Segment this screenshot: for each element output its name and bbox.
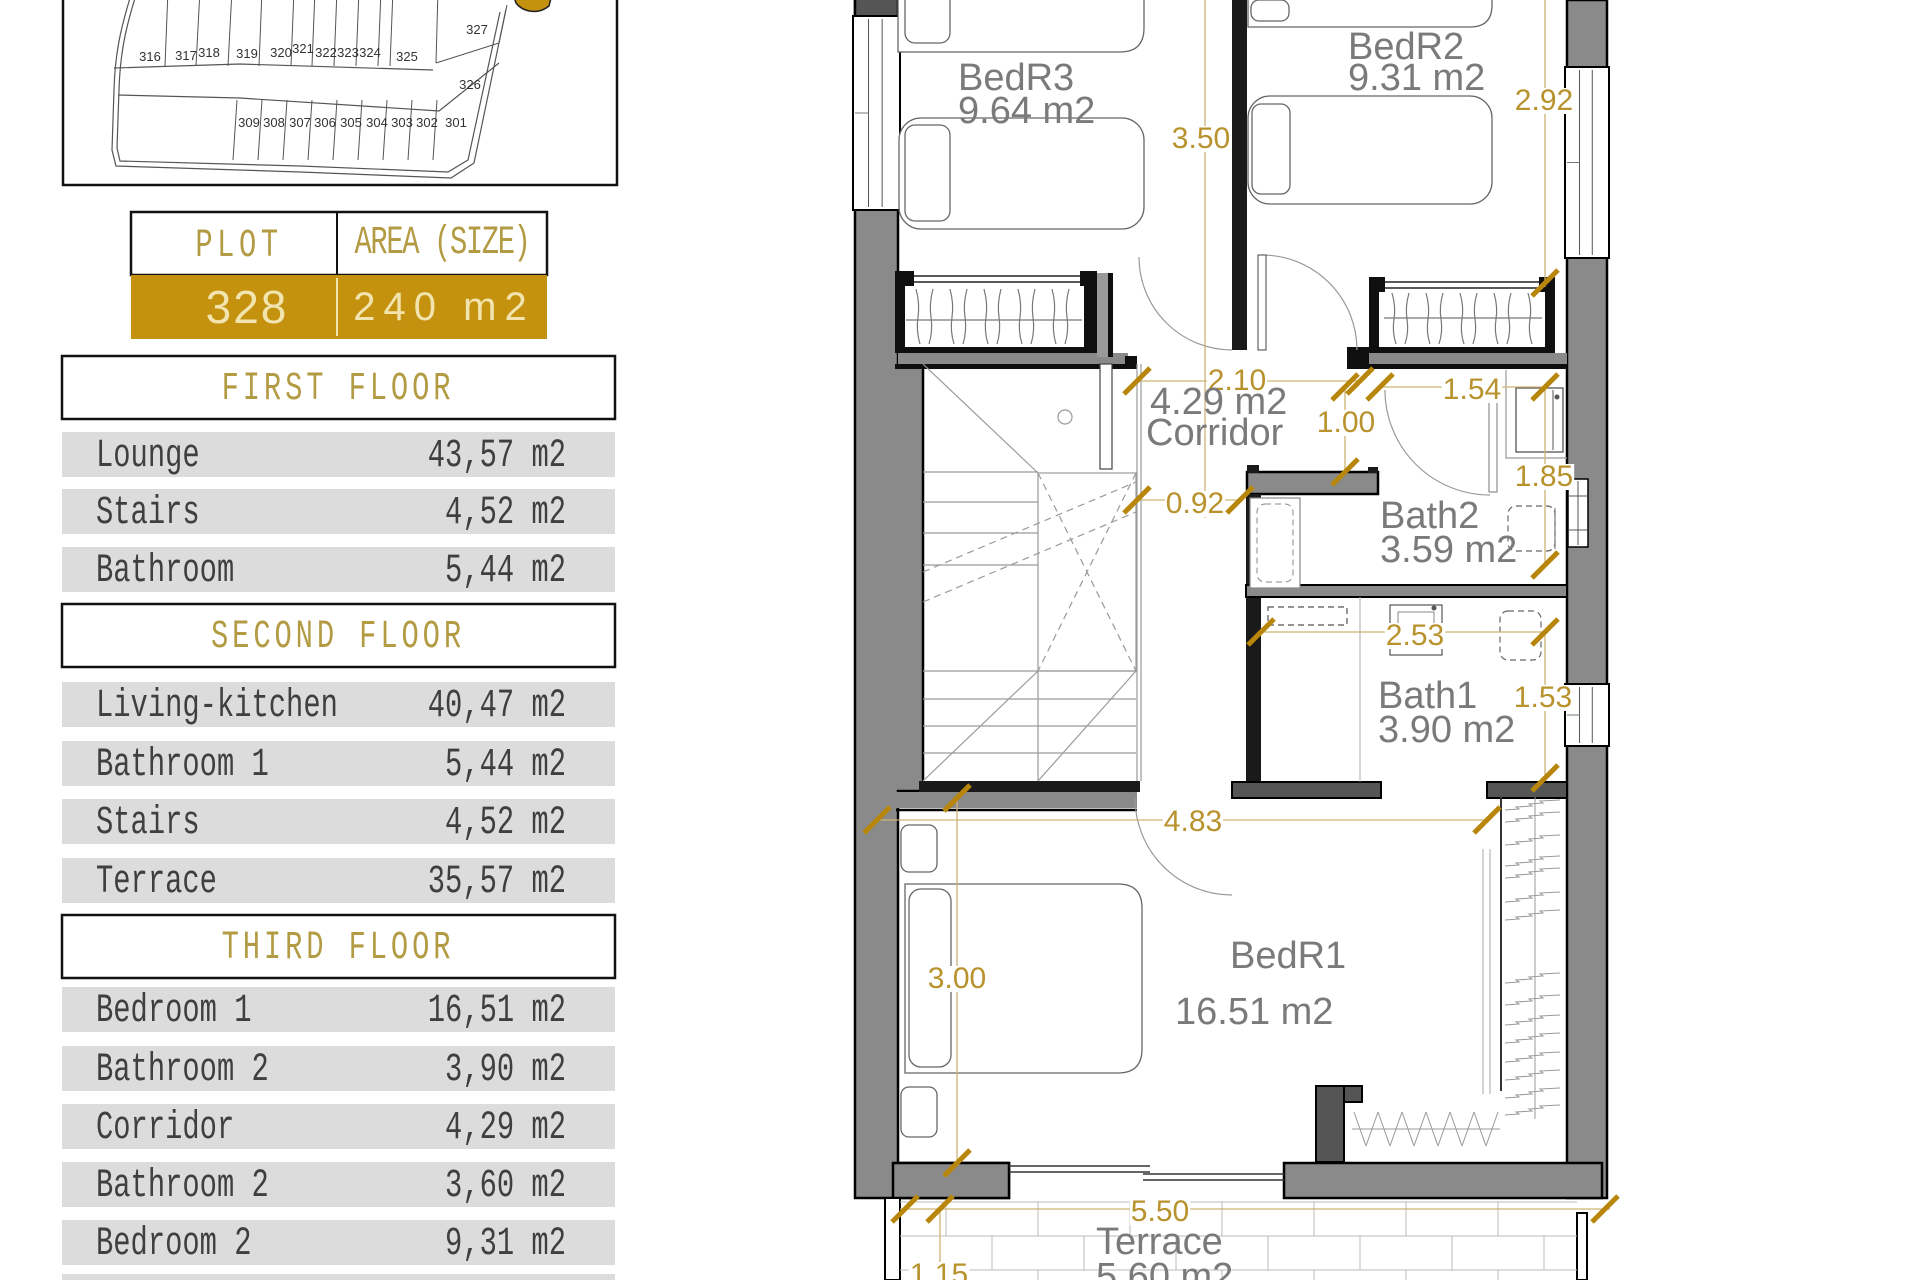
svg-text:16.51 m2: 16.51 m2 (1175, 991, 1333, 1033)
svg-text:3.00: 3.00 (928, 962, 986, 995)
svg-text:3,90 m2: 3,90 m2 (445, 1048, 566, 1093)
svg-text:303: 303 (391, 115, 413, 130)
svg-text:3.59 m2: 3.59 m2 (1380, 529, 1517, 571)
svg-text:Lounge: Lounge (96, 434, 200, 479)
svg-text:9,31 m2: 9,31 m2 (445, 1222, 566, 1267)
svg-text:THIRD FLOOR: THIRD FLOOR (222, 926, 455, 971)
svg-text:SECOND FLOOR: SECOND FLOOR (211, 615, 465, 660)
svg-text:321: 321 (292, 41, 314, 56)
svg-text:2.92: 2.92 (1515, 84, 1573, 117)
svg-text:3.50: 3.50 (1172, 122, 1230, 155)
svg-text:16,51 m2: 16,51 m2 (428, 989, 566, 1034)
svg-text:Stairs: Stairs (96, 491, 200, 536)
svg-text:1.00: 1.00 (1317, 406, 1375, 439)
svg-text:307: 307 (289, 115, 311, 130)
svg-text:306: 306 (314, 115, 336, 130)
svg-text:308: 308 (263, 115, 285, 130)
svg-text:Bedroom 2: Bedroom 2 (96, 1222, 252, 1267)
svg-text:320: 320 (270, 45, 292, 60)
svg-text:240 m2: 240 m2 (353, 285, 534, 329)
svg-text:1.15: 1.15 (910, 1258, 968, 1280)
svg-text:Bathroom 2: Bathroom 2 (96, 1164, 269, 1209)
svg-text:325: 325 (396, 49, 418, 64)
svg-text:1.85: 1.85 (1515, 460, 1573, 493)
svg-text:324: 324 (359, 45, 381, 60)
svg-text:302: 302 (416, 115, 438, 130)
svg-text:43,57 m2: 43,57 m2 (428, 434, 566, 479)
svg-text:5.60 m2: 5.60 m2 (1096, 1256, 1233, 1280)
svg-text:Bedroom 1: Bedroom 1 (96, 989, 252, 1034)
svg-text:AREA (SIZE): AREA (SIZE) (354, 221, 529, 266)
svg-text:322: 322 (315, 45, 337, 60)
svg-text:Corridor: Corridor (1146, 412, 1284, 454)
svg-text:Living-kitchen: Living-kitchen (96, 684, 338, 729)
svg-text:Corridor: Corridor (96, 1106, 234, 1151)
svg-text:3.90 m2: 3.90 m2 (1378, 709, 1515, 751)
svg-text:301: 301 (445, 115, 467, 130)
svg-text:304: 304 (366, 115, 388, 130)
svg-text:4,52 m2: 4,52 m2 (445, 491, 566, 536)
svg-text:0.92: 0.92 (1166, 487, 1224, 520)
svg-text:318: 318 (198, 45, 220, 60)
svg-text:9.31 m2: 9.31 m2 (1348, 57, 1485, 99)
svg-text:4,52 m2: 4,52 m2 (445, 801, 566, 846)
svg-text:323: 323 (337, 45, 359, 60)
svg-text:9.64 m2: 9.64 m2 (958, 90, 1095, 132)
svg-text:327: 327 (466, 22, 488, 37)
svg-text:5,44 m2: 5,44 m2 (445, 743, 566, 788)
svg-text:Terrace: Terrace (96, 860, 217, 905)
svg-text:Bathroom 2: Bathroom 2 (96, 1048, 269, 1093)
svg-text:Stairs: Stairs (96, 801, 200, 846)
svg-text:309: 309 (238, 115, 260, 130)
svg-text:35,57 m2: 35,57 m2 (428, 860, 566, 905)
svg-text:326: 326 (459, 77, 481, 92)
svg-text:4.83: 4.83 (1164, 805, 1222, 838)
svg-text:PLOT: PLOT (195, 224, 282, 269)
svg-text:4,29 m2: 4,29 m2 (445, 1106, 566, 1151)
svg-text:1.53: 1.53 (1514, 681, 1572, 714)
svg-text:319: 319 (236, 46, 258, 61)
svg-text:317: 317 (175, 48, 197, 63)
svg-text:2.53: 2.53 (1386, 619, 1444, 652)
svg-text:3,60 m2: 3,60 m2 (445, 1164, 566, 1209)
svg-text:40,47 m2: 40,47 m2 (428, 684, 566, 729)
svg-text:Bathroom: Bathroom (96, 549, 234, 594)
svg-text:328: 328 (206, 281, 289, 333)
svg-text:1.54: 1.54 (1443, 373, 1501, 406)
svg-text:FIRST FLOOR: FIRST FLOOR (222, 367, 455, 412)
svg-text:305: 305 (340, 115, 362, 130)
svg-text:5,44 m2: 5,44 m2 (445, 549, 566, 594)
svg-text:316: 316 (139, 49, 161, 64)
svg-text:BedR1: BedR1 (1230, 935, 1346, 977)
svg-text:Bathroom 1: Bathroom 1 (96, 743, 269, 788)
